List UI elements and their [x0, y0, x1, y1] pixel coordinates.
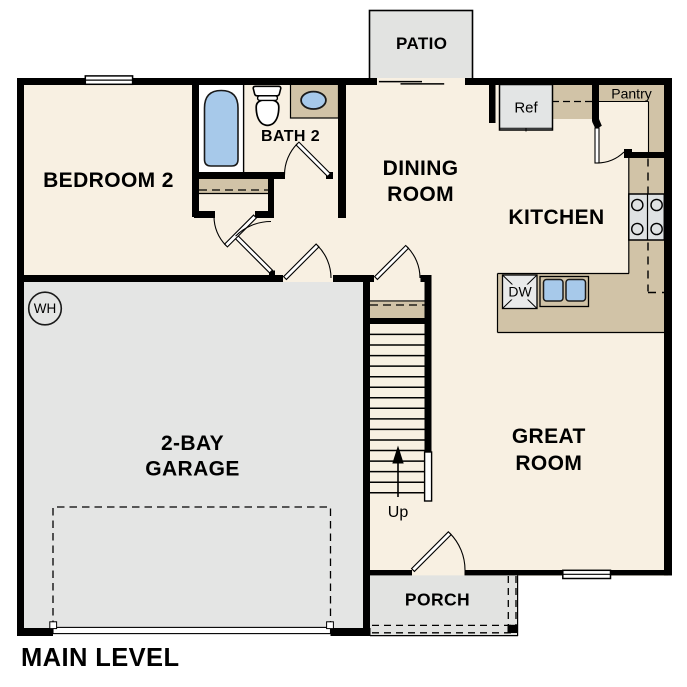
svg-text:Ref: Ref — [514, 100, 538, 117]
svg-text:2-BAY: 2-BAY — [161, 432, 224, 455]
svg-text:MAIN LEVEL: MAIN LEVEL — [21, 644, 179, 672]
svg-text:GARAGE: GARAGE — [145, 458, 240, 481]
svg-text:ROOM: ROOM — [387, 183, 454, 206]
svg-text:GREAT: GREAT — [512, 425, 586, 448]
svg-text:KITCHEN: KITCHEN — [508, 206, 604, 229]
svg-text:BATH 2: BATH 2 — [261, 128, 320, 145]
svg-text:PORCH: PORCH — [405, 590, 470, 610]
svg-text:ROOM: ROOM — [515, 452, 582, 475]
svg-text:Pantry: Pantry — [611, 86, 651, 102]
svg-text:BEDROOM 2: BEDROOM 2 — [43, 169, 174, 192]
svg-text:DINING: DINING — [383, 157, 459, 180]
svg-text:DW: DW — [508, 284, 532, 300]
svg-text:PATIO: PATIO — [396, 34, 447, 53]
svg-text:Up: Up — [388, 504, 409, 521]
svg-text:WH: WH — [34, 301, 57, 316]
